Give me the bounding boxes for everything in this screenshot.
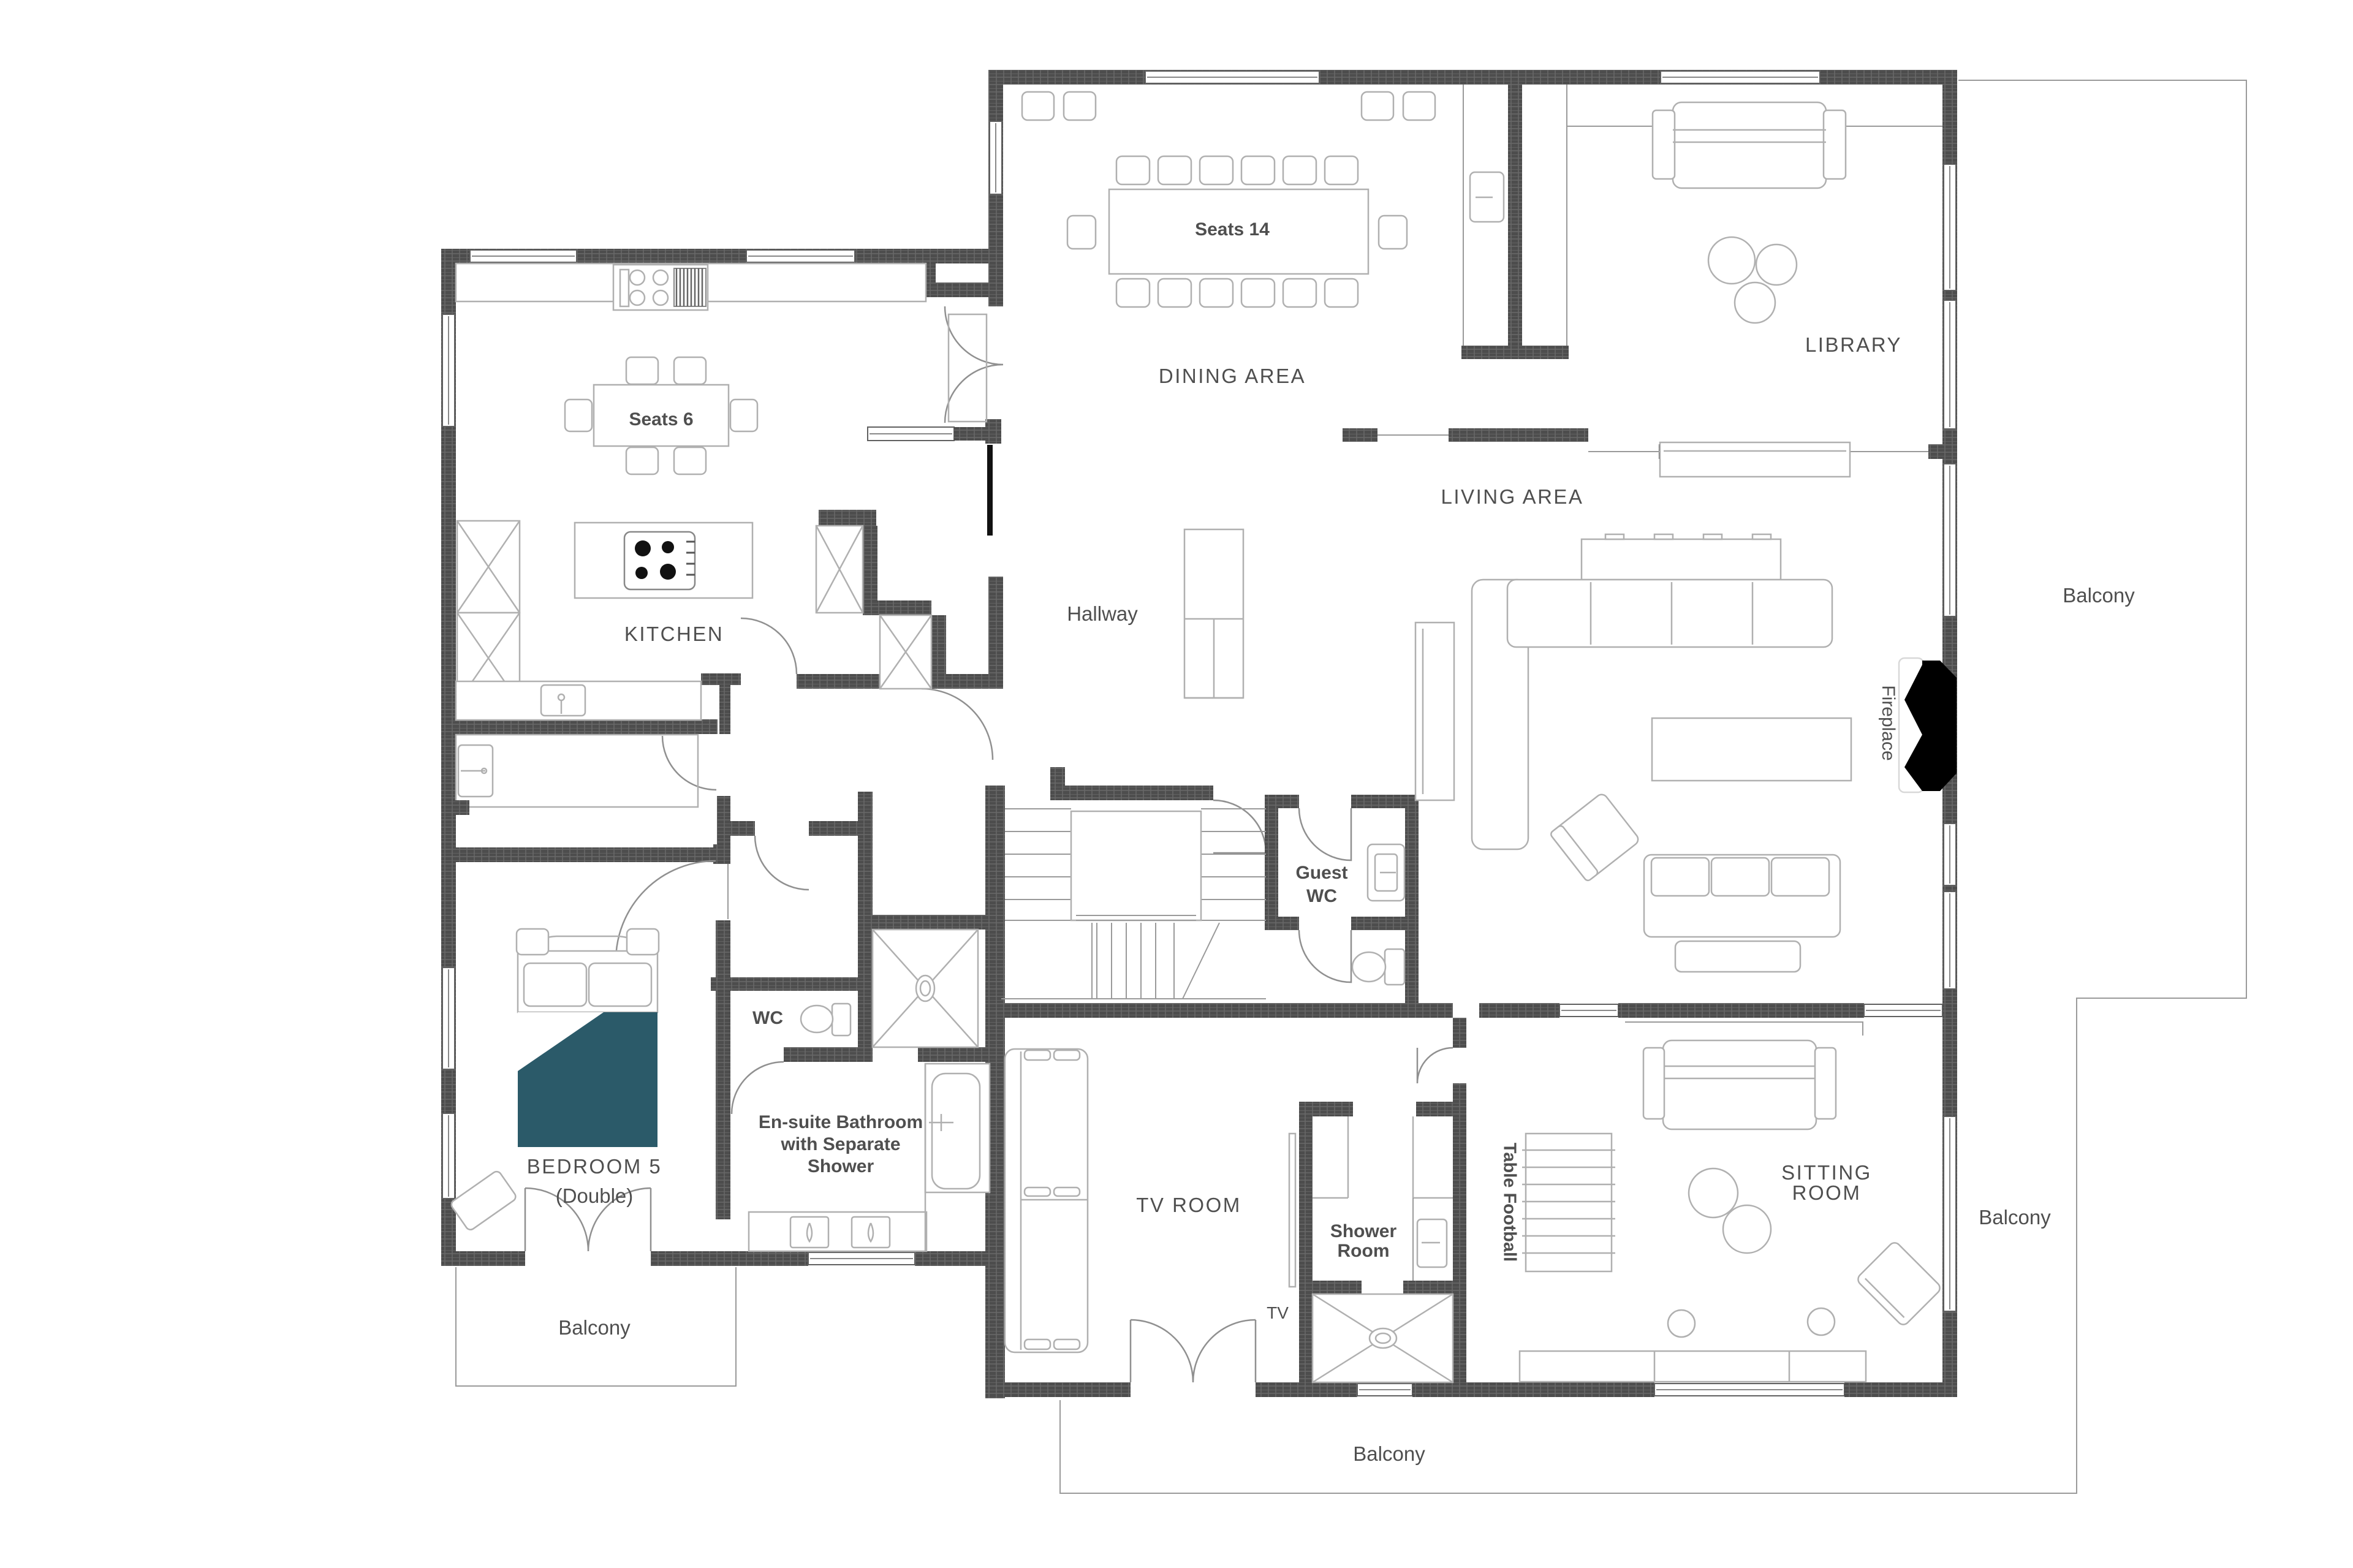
svg-text:WC: WC <box>1306 886 1337 906</box>
svg-text:KITCHEN: KITCHEN <box>624 623 724 645</box>
svg-text:(Double): (Double) <box>556 1184 634 1207</box>
svg-text:SITTING: SITTING <box>1781 1161 1872 1184</box>
svg-text:Balcony: Balcony <box>1353 1442 1425 1465</box>
svg-text:Balcony: Balcony <box>2063 584 2135 607</box>
svg-text:Room: Room <box>1338 1241 1390 1261</box>
svg-text:DINING AREA: DINING AREA <box>1159 365 1306 387</box>
svg-text:LIVING AREA: LIVING AREA <box>1441 485 1584 508</box>
svg-text:with Separate: with Separate <box>780 1134 900 1154</box>
svg-text:BEDROOM 5: BEDROOM 5 <box>527 1155 662 1178</box>
svg-text:Shower: Shower <box>808 1156 874 1176</box>
svg-text:Balcony: Balcony <box>1979 1206 2051 1229</box>
svg-text:Table Football: Table Football <box>1499 1143 1519 1262</box>
svg-text:TV: TV <box>1267 1303 1289 1322</box>
svg-text:WC: WC <box>752 1008 783 1028</box>
svg-text:Guest: Guest <box>1295 863 1347 883</box>
svg-text:Shower: Shower <box>1330 1221 1397 1241</box>
svg-text:Seats 14: Seats 14 <box>1195 219 1270 240</box>
svg-text:Hallway: Hallway <box>1067 602 1138 625</box>
svg-text:Seats 6: Seats 6 <box>629 409 693 430</box>
svg-text:TV ROOM: TV ROOM <box>1136 1194 1241 1216</box>
svg-text:Fireplace: Fireplace <box>1878 685 1898 760</box>
svg-text:ROOM: ROOM <box>1792 1181 1862 1204</box>
svg-text:LIBRARY: LIBRARY <box>1805 333 1902 356</box>
svg-text:Balcony: Balcony <box>558 1316 631 1339</box>
svg-text:En-suite Bathroom: En-suite Bathroom <box>759 1112 923 1132</box>
